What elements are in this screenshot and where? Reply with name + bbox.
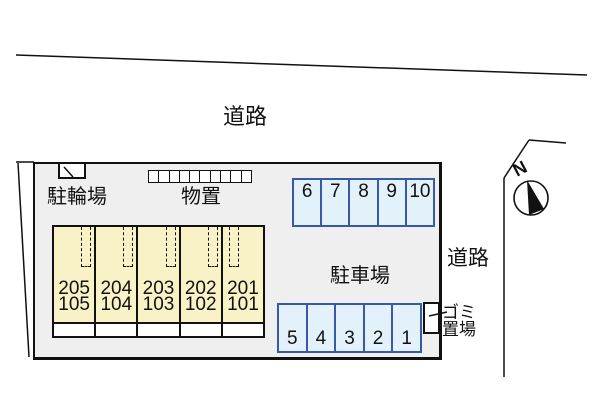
parking-space: 8	[350, 180, 378, 225]
unit-numbers: 201 101	[223, 281, 263, 313]
building-unit: 205 105	[54, 227, 96, 336]
unit-room: 203 103	[138, 227, 178, 322]
road-label-right: 道路	[438, 242, 498, 272]
unit-balcony	[223, 322, 263, 336]
site-plan-diagram: 道路 駐輪場 物置 205 105	[0, 0, 600, 400]
unit-numbers: 205 105	[54, 281, 94, 313]
storage-cell	[242, 171, 251, 182]
bicycle-parking-rect	[58, 162, 86, 179]
unit-lower-number: 101	[223, 297, 263, 313]
parking-space: 1	[393, 305, 420, 351]
parking-space: 4	[308, 305, 337, 351]
entry-dashed-outline	[208, 227, 218, 267]
unit-numbers: 202 102	[181, 281, 221, 313]
road-label-top: 道路	[200, 99, 290, 131]
parking-space: 2	[365, 305, 394, 351]
building-unit: 202 102	[181, 227, 223, 336]
parking-row-bottom: 5 4 3 2 1	[277, 303, 422, 353]
garbage-label-line2: 置場	[442, 321, 476, 338]
road-edge-left	[18, 163, 29, 357]
unit-balcony	[96, 322, 136, 336]
parking-space: 7	[322, 180, 350, 225]
parking-row-top: 6 7 8 9 10	[292, 178, 435, 227]
road-edge-right-diagonal	[504, 140, 529, 178]
entry-dashed-outline	[166, 227, 176, 267]
bicycle-parking-label: 駐輪場	[47, 180, 107, 209]
garbage-area-label: ゴミ 置場	[442, 304, 476, 338]
unit-lower-number: 103	[138, 297, 178, 313]
parking-lot-label: 駐車場	[297, 259, 423, 288]
unit-balcony	[54, 322, 94, 336]
parking-space: 3	[336, 305, 365, 351]
building-unit: 201 101	[223, 227, 263, 336]
parking-space: 5	[279, 305, 308, 351]
unit-room: 201 101	[223, 227, 263, 322]
entry-dashed-outline	[229, 227, 239, 267]
garbage-label-line1: ゴミ	[442, 304, 476, 321]
compass-north-label: N	[509, 157, 530, 181]
parking-space: 9	[379, 180, 407, 225]
compass-circle	[514, 181, 548, 215]
unit-balcony	[138, 322, 178, 336]
unit-room: 204 104	[96, 227, 136, 322]
road-edge-right-cap	[529, 140, 566, 143]
unit-lower-number: 104	[96, 297, 136, 313]
parking-space: 10	[407, 180, 433, 225]
unit-room: 202 102	[181, 227, 221, 322]
unit-numbers: 203 103	[138, 281, 178, 313]
parking-space: 6	[294, 180, 322, 225]
unit-lower-number: 105	[54, 297, 94, 313]
unit-lower-number: 102	[181, 297, 221, 313]
road-edge-top	[16, 55, 587, 75]
compass-needle	[527, 180, 544, 215]
unit-balcony	[181, 322, 221, 336]
storage-cell	[149, 171, 159, 182]
garbage-area-rect	[423, 302, 440, 334]
building-unit: 204 104	[96, 227, 138, 336]
entry-dashed-outline	[123, 227, 133, 267]
entry-dashed-outline	[81, 227, 91, 267]
building-unit: 203 103	[138, 227, 180, 336]
storage-label: 物置	[165, 180, 237, 209]
unit-room: 205 105	[54, 227, 94, 322]
building-block: 205 105 204 104 203 103	[52, 225, 265, 338]
unit-numbers: 204 104	[96, 281, 136, 313]
